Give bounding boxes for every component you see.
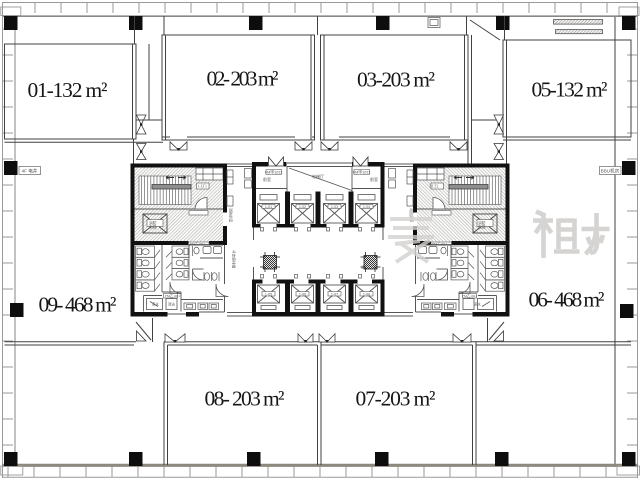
svg-text:1-07: 1-07 (331, 292, 338, 296)
svg-text:电梯: 电梯 (149, 225, 157, 230)
svg-text:02- 203 m²: 02- 203 m² (207, 67, 279, 91)
svg-text:FM乙1021: FM乙1021 (432, 241, 447, 246)
svg-text:4F 电井: 4F 电井 (22, 168, 38, 175)
svg-text:前室: 前室 (263, 176, 271, 182)
svg-text:1-01: 1-01 (265, 205, 272, 209)
svg-text:05-132 m²: 05-132 m² (532, 78, 608, 102)
svg-text:07-203 m²: 07-203 m² (356, 387, 436, 411)
svg-text:电梯: 电梯 (478, 225, 486, 230)
svg-text:09- 468 m²: 09- 468 m² (39, 293, 117, 317)
svg-text:1-02: 1-02 (299, 205, 306, 209)
svg-text:FM甲1021: FM甲1021 (265, 170, 283, 175)
svg-text:1-06: 1-06 (299, 292, 306, 296)
svg-text:1-04: 1-04 (363, 205, 370, 209)
svg-text:06- 468 m²: 06- 468 m² (529, 288, 605, 312)
svg-text:01-132 m²: 01-132 m² (28, 78, 108, 102)
svg-text:1-08: 1-08 (363, 292, 370, 296)
svg-text:BBU机房: BBU机房 (601, 168, 620, 175)
svg-text:FM甲1021: FM甲1021 (353, 170, 371, 175)
svg-text:4F走廊排烟: 4F走廊排烟 (232, 250, 237, 269)
svg-text:茶水: 茶水 (474, 302, 481, 307)
svg-text:1-LT1: 1-LT1 (198, 185, 207, 189)
svg-text:FM乙1021: FM乙1021 (190, 241, 205, 246)
svg-text:电梯厅: 电梯厅 (312, 173, 324, 179)
svg-text:茶水: 茶水 (152, 302, 159, 307)
svg-text:1-03: 1-03 (331, 205, 338, 209)
svg-text:消防前室: 消防前室 (229, 208, 234, 223)
svg-text:03-203 m²: 03-203 m² (357, 68, 435, 92)
svg-text:清洁: 清洁 (168, 302, 175, 307)
svg-text:FM乙1021: FM乙1021 (165, 293, 180, 298)
svg-text:1-05: 1-05 (265, 292, 272, 296)
svg-text:FM乙1021: FM乙1021 (462, 293, 477, 298)
svg-text:前室: 前室 (370, 176, 378, 182)
svg-text:1-LT2: 1-LT2 (429, 185, 438, 189)
svg-text:08- 203 m²: 08- 203 m² (205, 387, 285, 411)
